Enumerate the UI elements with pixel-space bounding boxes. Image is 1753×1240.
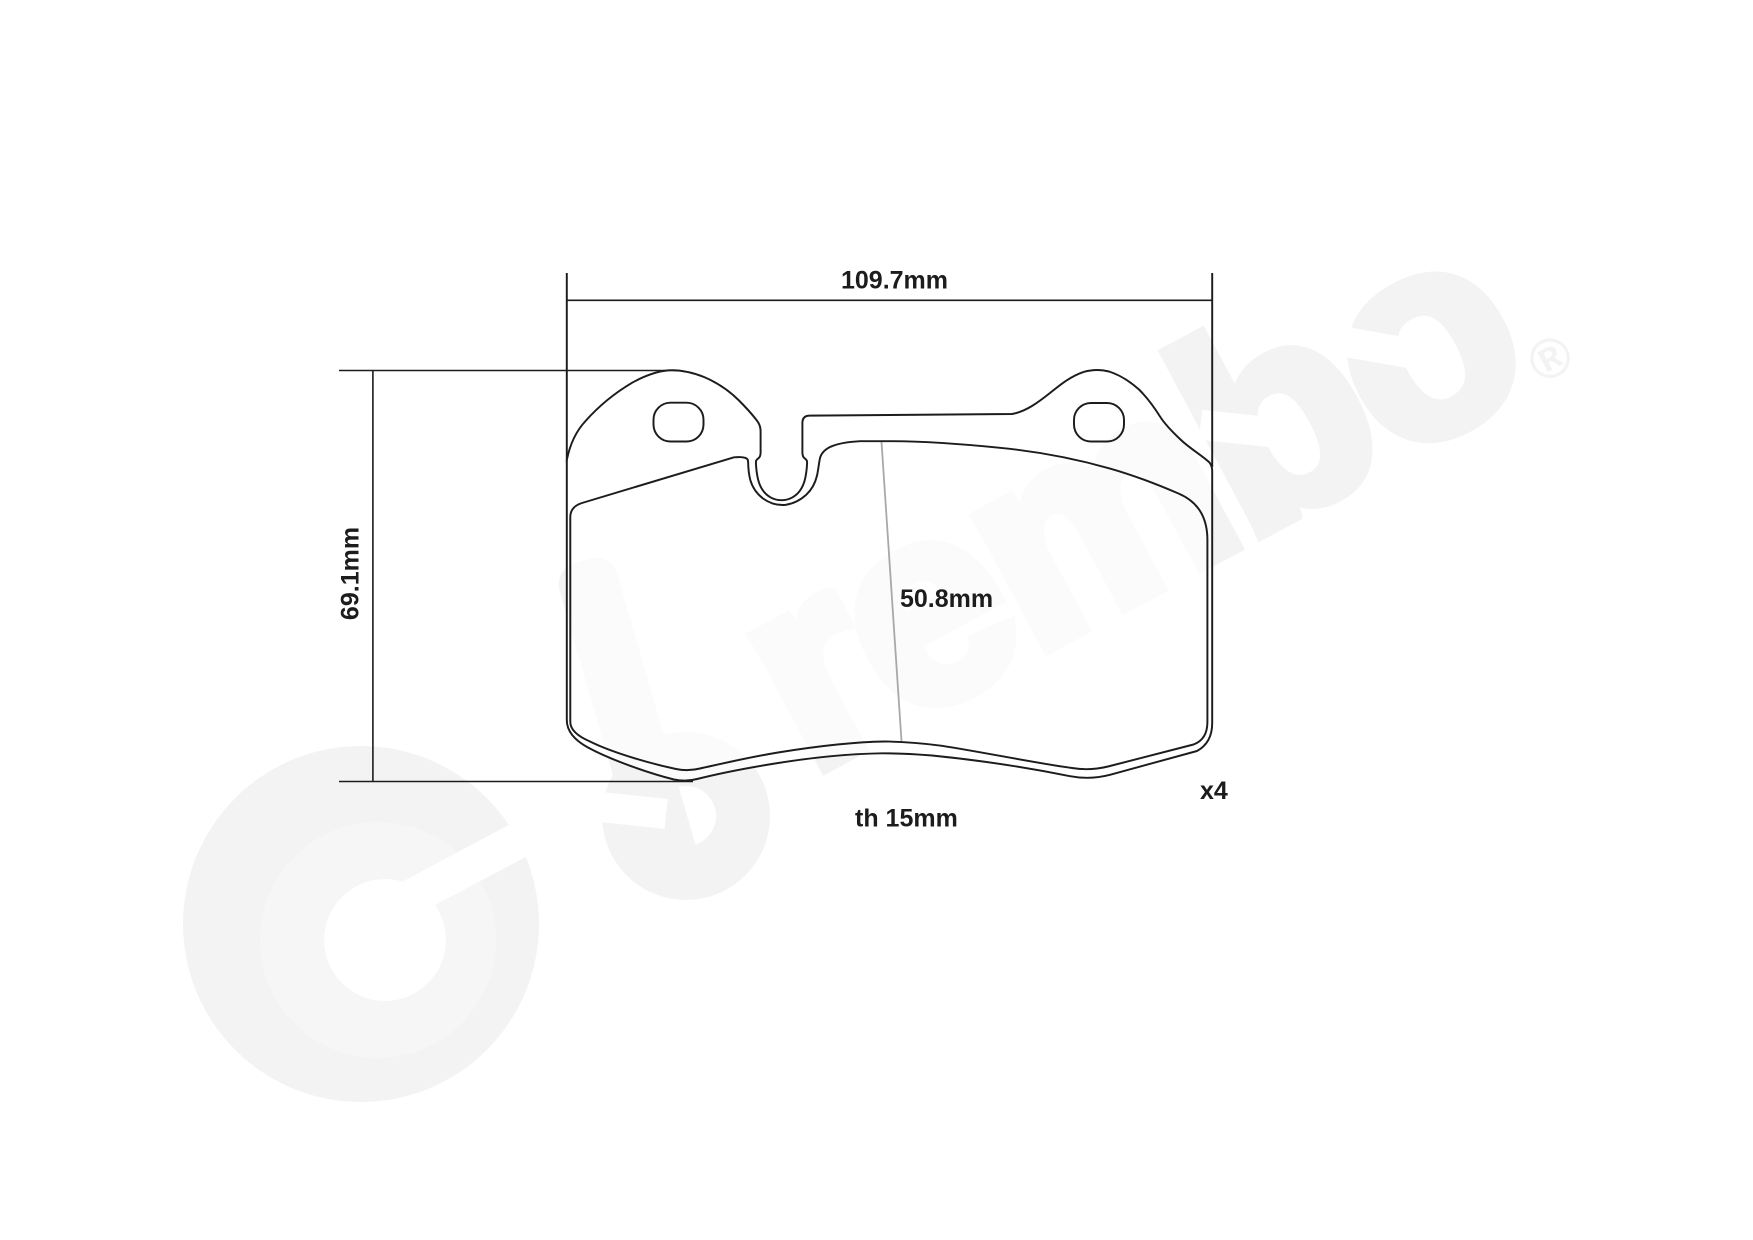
svg-text:x4: x4 bbox=[1200, 777, 1228, 805]
svg-text:th 15mm: th 15mm bbox=[855, 805, 958, 833]
svg-text:69.1mm: 69.1mm bbox=[337, 527, 365, 620]
svg-text:109.7mm: 109.7mm bbox=[841, 267, 948, 295]
svg-text:50.8mm: 50.8mm bbox=[900, 585, 993, 613]
